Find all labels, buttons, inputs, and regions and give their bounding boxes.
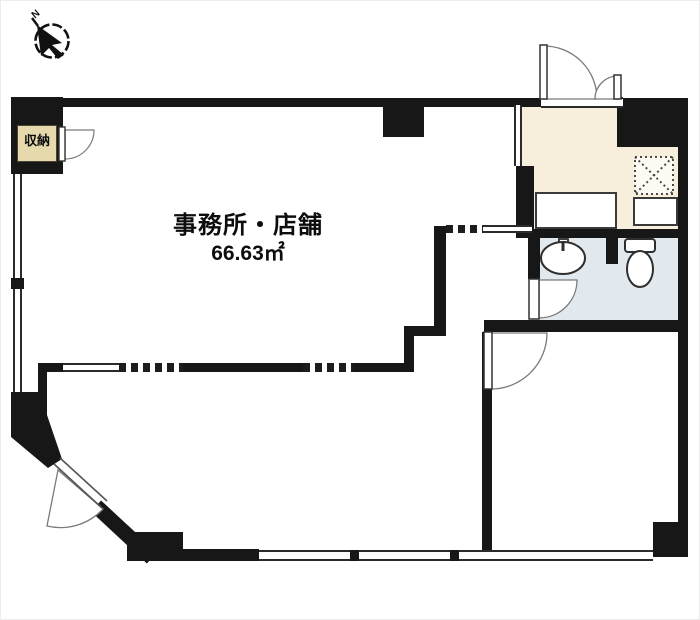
closet-door-icon <box>59 127 94 161</box>
washbasin-icon <box>541 239 585 274</box>
closet-label: 収納 <box>15 134 59 148</box>
plan-linework <box>1 1 700 620</box>
compass-icon <box>32 18 69 59</box>
lower-room-door-icon <box>484 332 547 389</box>
floor-plan: 事務所・店舗 66.63㎡ 収納 N <box>0 0 700 620</box>
shaft-icon <box>635 157 673 194</box>
room-label: 事務所・店舗 <box>128 213 368 239</box>
room-area-label: 66.63㎡ <box>128 242 368 265</box>
diagonal-wall <box>11 392 259 561</box>
washroom-door-icon <box>529 279 577 319</box>
entrance-door-icon <box>540 45 621 99</box>
toilet-icon <box>625 239 655 287</box>
